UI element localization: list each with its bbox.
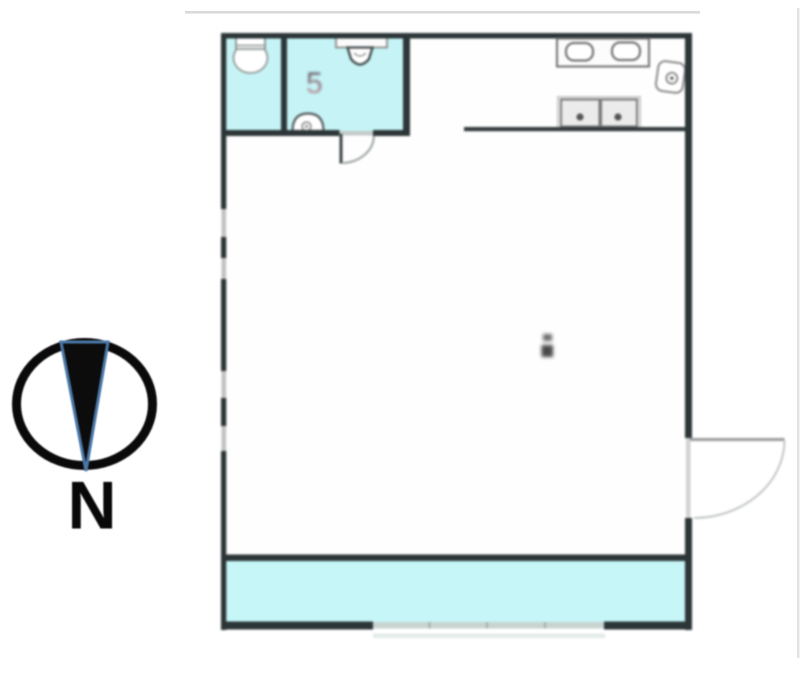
svg-text:N: N: [67, 468, 116, 544]
svg-text:5: 5: [306, 67, 323, 100]
